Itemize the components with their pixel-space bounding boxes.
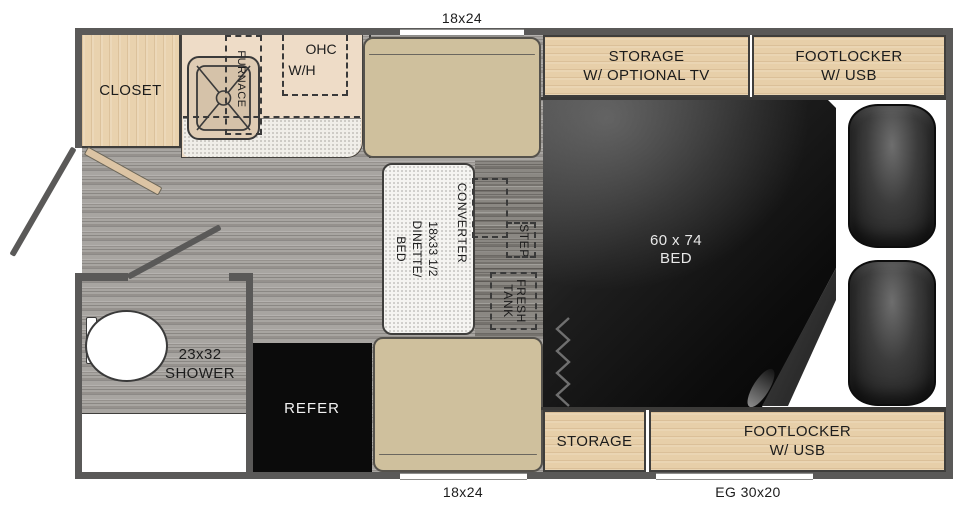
closet-label: CLOSET [99, 81, 161, 100]
furnace-label: FURNACE [235, 50, 247, 107]
fresh-tank-label: FRESH TANK [501, 279, 527, 323]
dinette-bench-bottom [373, 337, 543, 472]
ohc-label: OHC [305, 41, 336, 57]
storage-bottom-label: STORAGE [557, 432, 633, 451]
window-eg-label: EG 30x20 [688, 483, 808, 502]
wall-left-lower [75, 273, 82, 479]
window-top [400, 29, 524, 36]
bath-wall-vertical [246, 273, 253, 472]
dinette-label: 18x33 1/2 DINETTE/ BED [393, 220, 441, 277]
water-heater-label: W/H [288, 62, 315, 78]
bed-size: 60 x 74 [650, 232, 702, 250]
footlocker-top-line1: FOOTLOCKER [795, 47, 902, 66]
bed-cushion-bottom [848, 260, 936, 406]
footlocker-bottom-line2: W/ USB [770, 441, 826, 460]
bench-seam [369, 54, 535, 55]
entry-door-open [9, 147, 76, 257]
closet-area: CLOSET [82, 35, 181, 148]
shower-name: SHOWER [140, 364, 260, 383]
footlocker-bottom-line1: FOOTLOCKER [744, 422, 851, 441]
dinette-name2: BED [393, 220, 409, 277]
bath-wall-stub-left [75, 273, 128, 281]
bed-top-divider [541, 97, 946, 100]
storage-tv-line2: W/ OPTIONAL TV [583, 66, 709, 85]
window-bottom-label: 18x24 [403, 483, 523, 502]
converter-dashed-outline [472, 178, 508, 238]
bed-name: BED [660, 250, 692, 268]
bench-seam [379, 454, 537, 455]
dinette-bench-top [363, 37, 541, 158]
footlocker-bottom-cabinet: FOOTLOCKER W/ USB [649, 410, 946, 472]
converter-label: CONVERTER [455, 183, 469, 264]
fresh-tank-line2: TANK [501, 279, 514, 323]
dinette-name1: DINETTE/ [409, 220, 425, 277]
storage-bottom-cabinet: STORAGE [543, 410, 646, 472]
window-eg [656, 473, 813, 480]
step-dashed-outline [506, 222, 536, 258]
wall-left-upper [75, 28, 82, 148]
window-bottom [400, 473, 527, 480]
bed-zigzag [551, 316, 573, 410]
refrigerator: REFER [252, 343, 372, 473]
refer-label: REFER [284, 400, 340, 417]
wall-right [946, 28, 953, 479]
shower-label: 23x32 SHOWER [140, 345, 260, 383]
storage-tv-line1: STORAGE [609, 47, 685, 66]
floorplan-canvas: 18x24 18x24 EG 30x20 CLOSET FURNACE OHC … [0, 0, 980, 516]
storage-tv-cabinet: STORAGE W/ OPTIONAL TV [543, 35, 750, 97]
bed-label: 60 x 74 BED [611, 232, 741, 268]
footlocker-top-cabinet: FOOTLOCKER W/ USB [752, 35, 946, 97]
footlocker-top-line2: W/ USB [821, 66, 877, 85]
shower-size: 23x32 [140, 345, 260, 364]
dinette-size: 18x33 1/2 [425, 220, 441, 277]
fresh-tank-line1: FRESH [514, 279, 527, 323]
shower-pan [82, 413, 246, 472]
ohc-dashed-line [183, 116, 370, 118]
window-top-label: 18x24 [402, 9, 522, 28]
bed-cushion-top [848, 104, 936, 248]
